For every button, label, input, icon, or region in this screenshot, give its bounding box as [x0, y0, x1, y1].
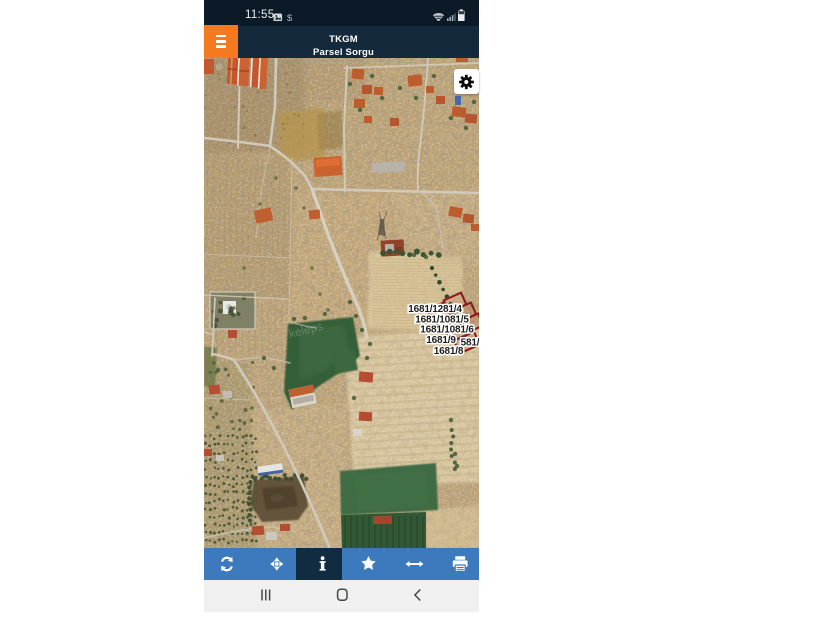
svg-text:1681/1081/6: 1681/1081/6 — [420, 325, 474, 336]
svg-text:$: $ — [287, 13, 293, 21]
svg-text:1681/9: 1681/9 — [426, 335, 456, 346]
svg-text:581/: 581/ — [461, 338, 479, 349]
svg-text:1681/8: 1681/8 — [434, 346, 464, 357]
